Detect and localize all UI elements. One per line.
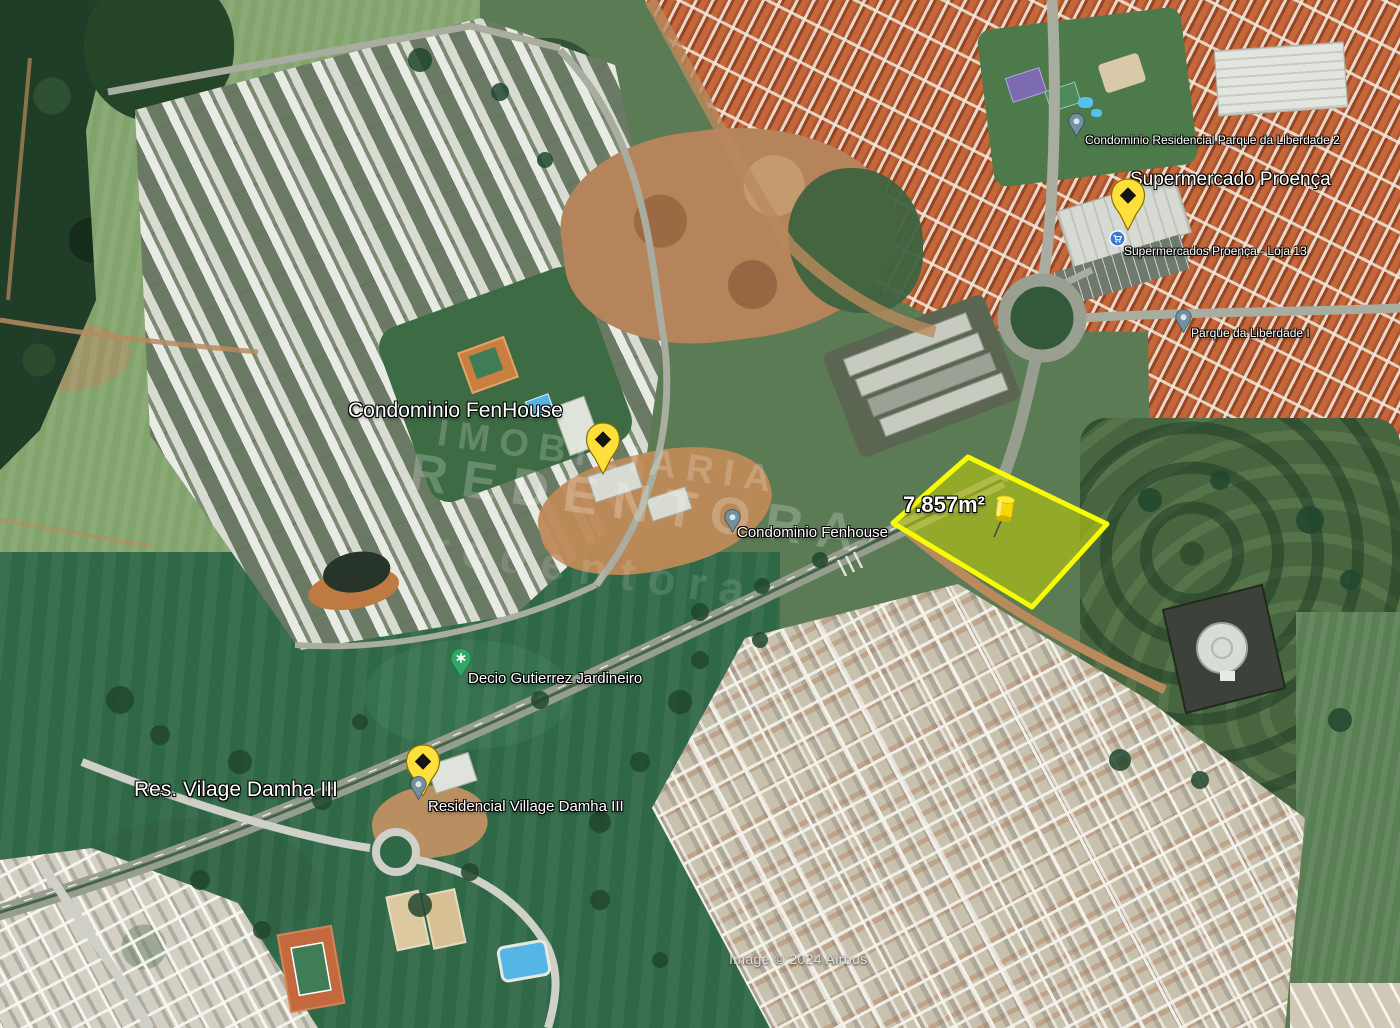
crosswalk [838,552,862,576]
pin-body [1112,179,1145,230]
poi-shopping-cart[interactable] [1109,230,1126,252]
placemark-pin-supermercado[interactable] [1110,178,1146,237]
poi-circle [1110,231,1125,246]
label-res-vilage-damha[interactable]: Res. Vilage Damha III [134,778,338,802]
pin-body [1069,114,1084,137]
label-residencial-village-damha[interactable]: Residencial Village Damha III [428,798,624,815]
pushpin-parcel[interactable] [985,492,1021,550]
pin-body [451,649,471,678]
cart-wheel [1119,241,1121,243]
label-parcel-area: 7.857m² [903,492,985,518]
pin-dot [416,781,422,787]
poi-pin-fenhouse-gate[interactable] [724,509,741,538]
corner-houses [1290,983,1400,1028]
label-condominio-fenhouse-gate[interactable]: Condominio Fenhouse [737,524,888,541]
poi-pin-decio-gardener[interactable] [450,648,472,683]
label-supermercados-loja[interactable]: Supermercados Proença - Loja 13 [1124,244,1307,258]
pin-body [1176,310,1191,333]
pin-dot [730,514,736,520]
pin-body [725,510,740,533]
cart-wheel [1115,241,1117,243]
pin-body [411,777,426,800]
label-condominio-fenhouse[interactable]: Condominio FenHouse [348,399,563,423]
pin-dot [1074,118,1080,124]
pushpin-needle [994,520,1001,537]
poi-pin-liberdade-1[interactable] [1175,309,1192,338]
swimming-pool [1091,109,1102,117]
poi-pin-village[interactable] [410,776,427,805]
placemark-pin-fenhouse[interactable] [585,422,621,481]
pin-body [587,423,620,474]
label-parque-liberdade-2[interactable]: Condominio Residencial Parque da Liberda… [1085,133,1340,147]
label-parque-liberdade-1[interactable]: Parque da Liberdade I [1191,326,1310,340]
warehouse-roof [1214,42,1348,117]
poi-pin-liberdade-2[interactable] [1068,113,1085,142]
pin-dot [1181,314,1187,320]
label-supermercado-proenca[interactable]: Supermercado Proença [1130,169,1331,191]
imagery-attribution: Image © 2024 Airbus [729,951,868,967]
satellite-map[interactable]: IMOBILIARIA REDENTORA redentora Condomin… [0,0,1400,1028]
farm-field [1296,612,1400,1014]
label-decio-gutierrez[interactable]: Decio Gutierrez Jardineiro [468,670,642,687]
swimming-pool [1078,97,1093,108]
